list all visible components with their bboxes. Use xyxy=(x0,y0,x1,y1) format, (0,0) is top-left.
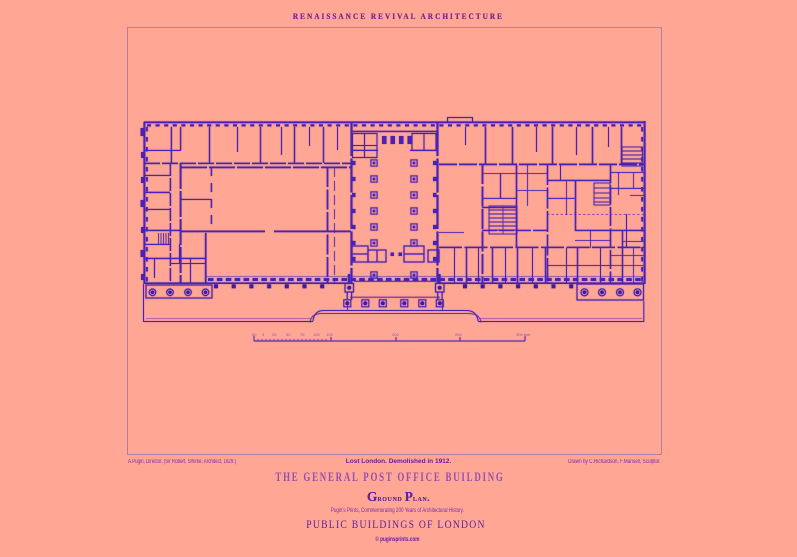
svg-text:25: 25 xyxy=(272,332,277,337)
svg-text:250: 250 xyxy=(455,332,462,337)
svg-text:300 feet: 300 feet xyxy=(516,332,531,337)
svg-text:125: 125 xyxy=(326,332,333,337)
svg-text:50: 50 xyxy=(252,332,257,337)
svg-text:200: 200 xyxy=(392,332,399,337)
svg-text:75: 75 xyxy=(300,332,305,337)
svg-text:50: 50 xyxy=(286,332,291,337)
svg-text:0: 0 xyxy=(262,332,265,337)
svg-text:100: 100 xyxy=(313,332,320,337)
